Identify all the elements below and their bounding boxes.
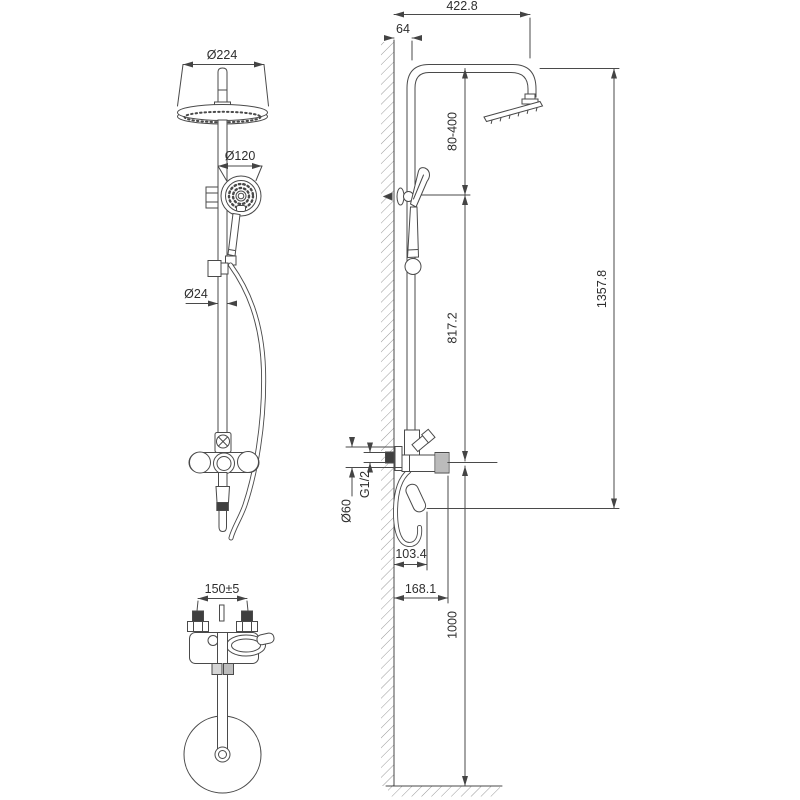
hand-shower-front [206, 176, 261, 265]
technical-drawing-page: Ø224 Ø120 Ø24 150±5 422.8 64 80-400 817.… [0, 0, 800, 800]
label-spout-reach: 103.4 [395, 547, 426, 561]
label-escutcheon-diameter: Ø60 [340, 499, 354, 523]
label-total-height: 1357.8 [595, 270, 609, 308]
plan-view [184, 599, 275, 794]
eccentric-union-right [237, 611, 258, 632]
arm-joint-plan [215, 747, 230, 762]
riser-pipe-side [407, 65, 536, 434]
dim-horizontal-reach [394, 15, 530, 59]
wall-hatch [381, 42, 394, 786]
label-bar-height: 817.2 [446, 312, 460, 343]
front-view [178, 65, 275, 794]
side-view [346, 15, 619, 797]
shower-hose-front [231, 265, 264, 538]
label-hand-shower-diameter: Ø120 [225, 149, 256, 163]
label-wall-to-pipe: 64 [396, 22, 410, 36]
label-mixer-to-floor: 1000 [446, 611, 460, 639]
label-pipe-diameter: Ø24 [184, 287, 208, 301]
label-thread-size: G1/2 [358, 471, 372, 498]
mount-block-right [224, 664, 234, 675]
overhead-shower-front [178, 68, 268, 124]
overhead-shower-side [484, 94, 543, 124]
floor-hatch [388, 787, 500, 797]
mount-block-left [212, 664, 222, 675]
eccentric-union-left [188, 611, 209, 632]
diverter-pin [220, 605, 225, 621]
diverter-front [215, 433, 231, 453]
label-horizontal-reach: 422.8 [446, 0, 477, 13]
arm-tube-plan [218, 633, 228, 752]
hand-shower-side [384, 168, 470, 275]
label-holder-range: 80-400 [446, 112, 460, 151]
label-head-diameter: Ø224 [207, 48, 238, 62]
mixer-plan [190, 632, 275, 663]
dimension-labels: Ø224 Ø120 Ø24 150±5 422.8 64 80-400 817.… [184, 0, 609, 639]
shower-system-drawing: Ø224 Ø120 Ø24 150±5 422.8 64 80-400 817.… [0, 0, 800, 800]
slider-bracket-front [208, 261, 228, 277]
label-handle-reach: 168.1 [405, 582, 436, 596]
label-connection-spacing: 150±5 [205, 582, 240, 596]
